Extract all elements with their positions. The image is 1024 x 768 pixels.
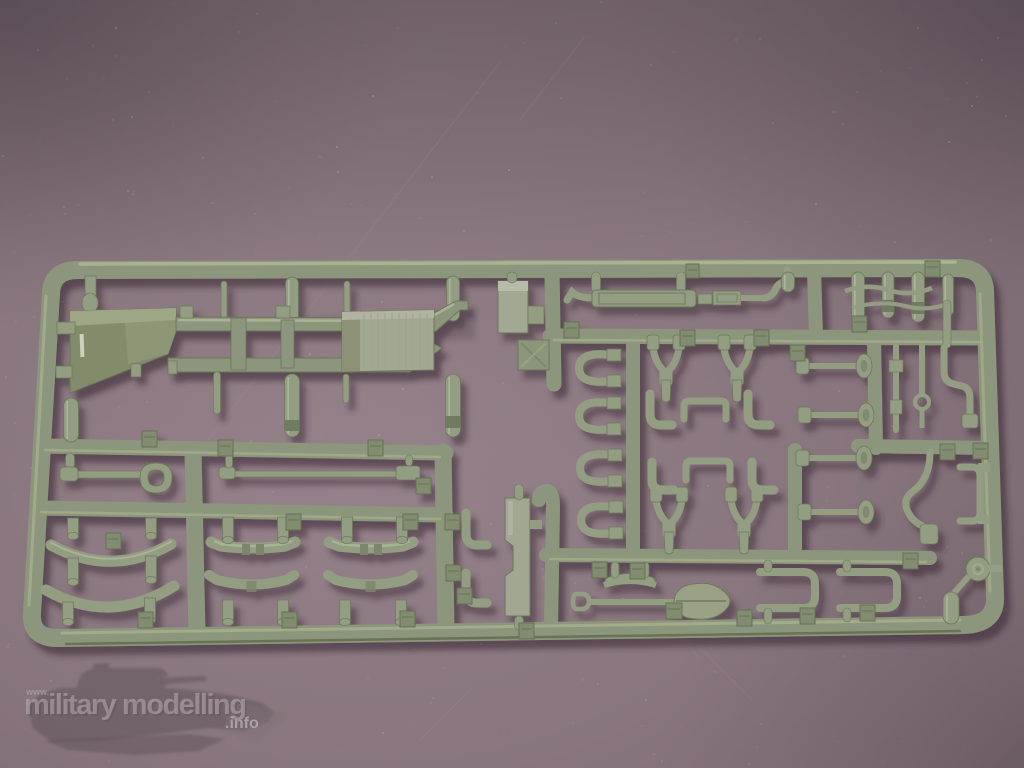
svg-text:military modelling: military modelling — [24, 689, 246, 721]
svg-text:.info: .info — [225, 715, 259, 732]
